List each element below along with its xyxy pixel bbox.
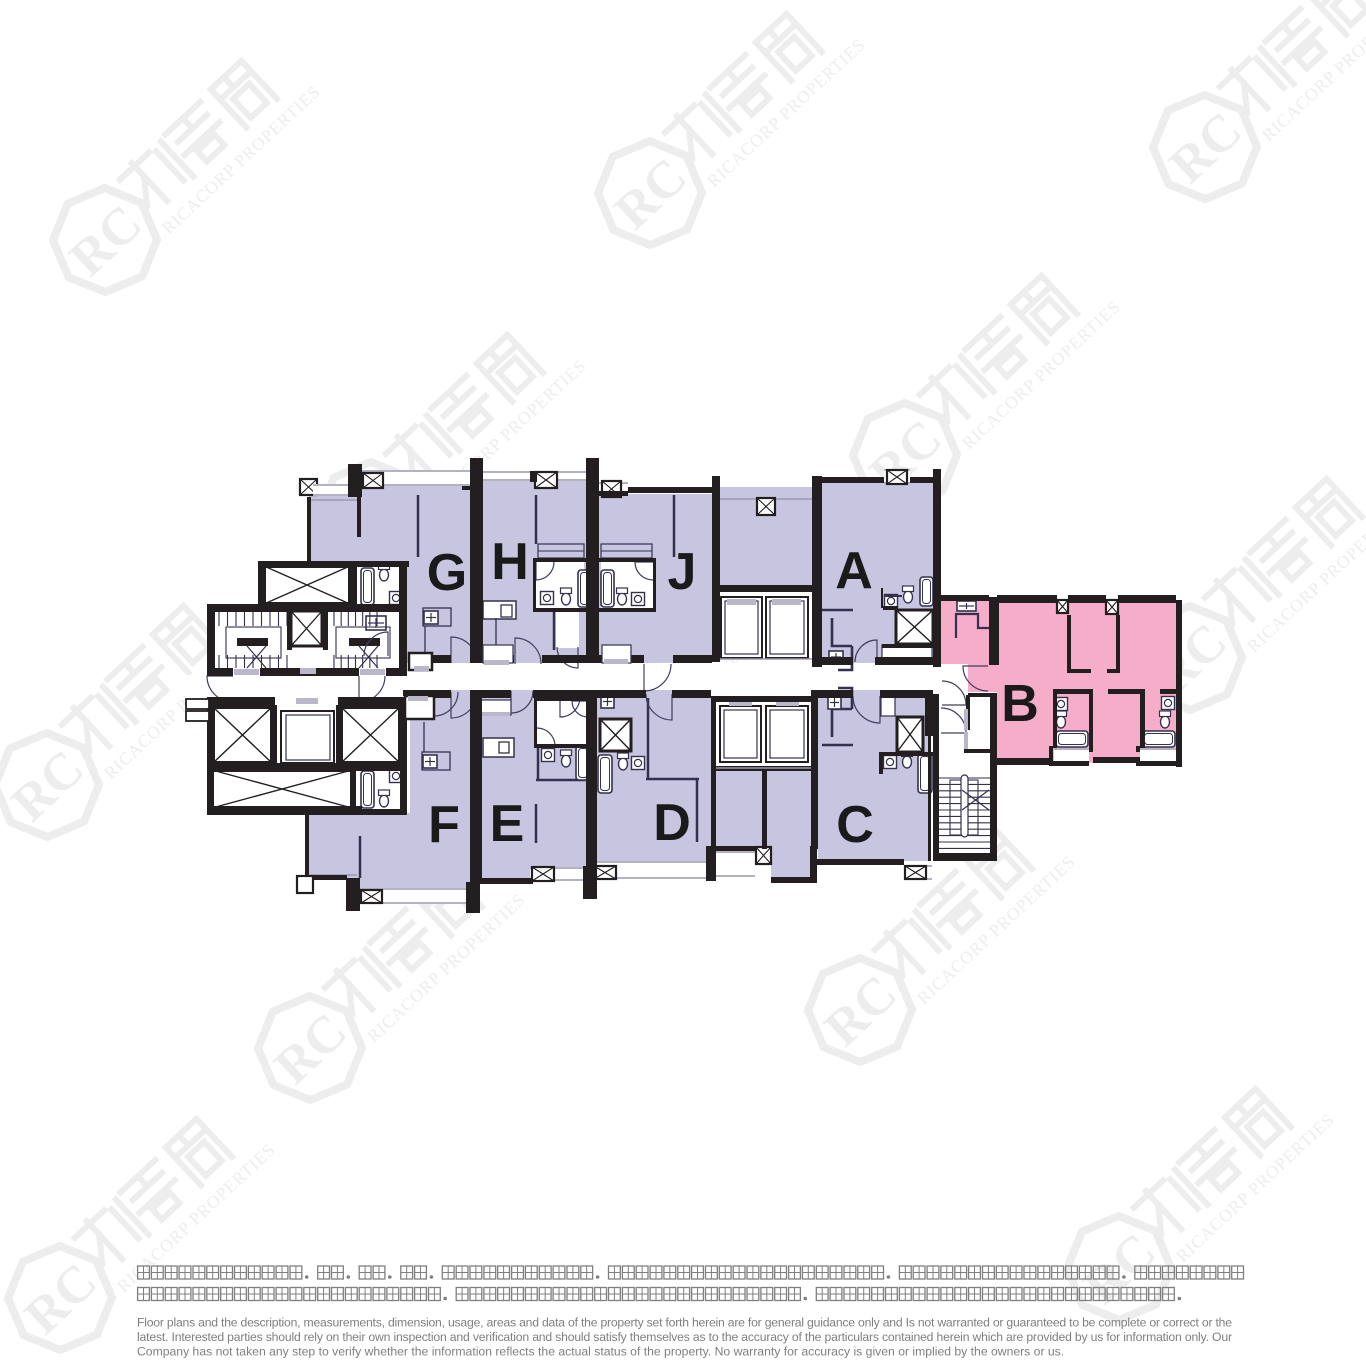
svg-text:E: E [490,795,525,853]
svg-text:latest. Interested parties sho: latest. Interested parties should rely o… [137,1330,1232,1344]
svg-text:B: B [1001,675,1039,733]
svg-text:G: G [427,544,467,602]
svg-text:H: H [491,533,529,591]
svg-text:A: A [835,542,873,600]
svg-text:J: J [668,543,697,601]
svg-text:D: D [653,794,691,852]
svg-text:Floor plans and the descriptio: Floor plans and the description, measure… [137,1316,1232,1330]
svg-text:C: C [836,796,874,854]
svg-text:Company has not taken any step: Company has not taken any step to verify… [137,1345,1064,1359]
svg-text:F: F [428,796,460,854]
